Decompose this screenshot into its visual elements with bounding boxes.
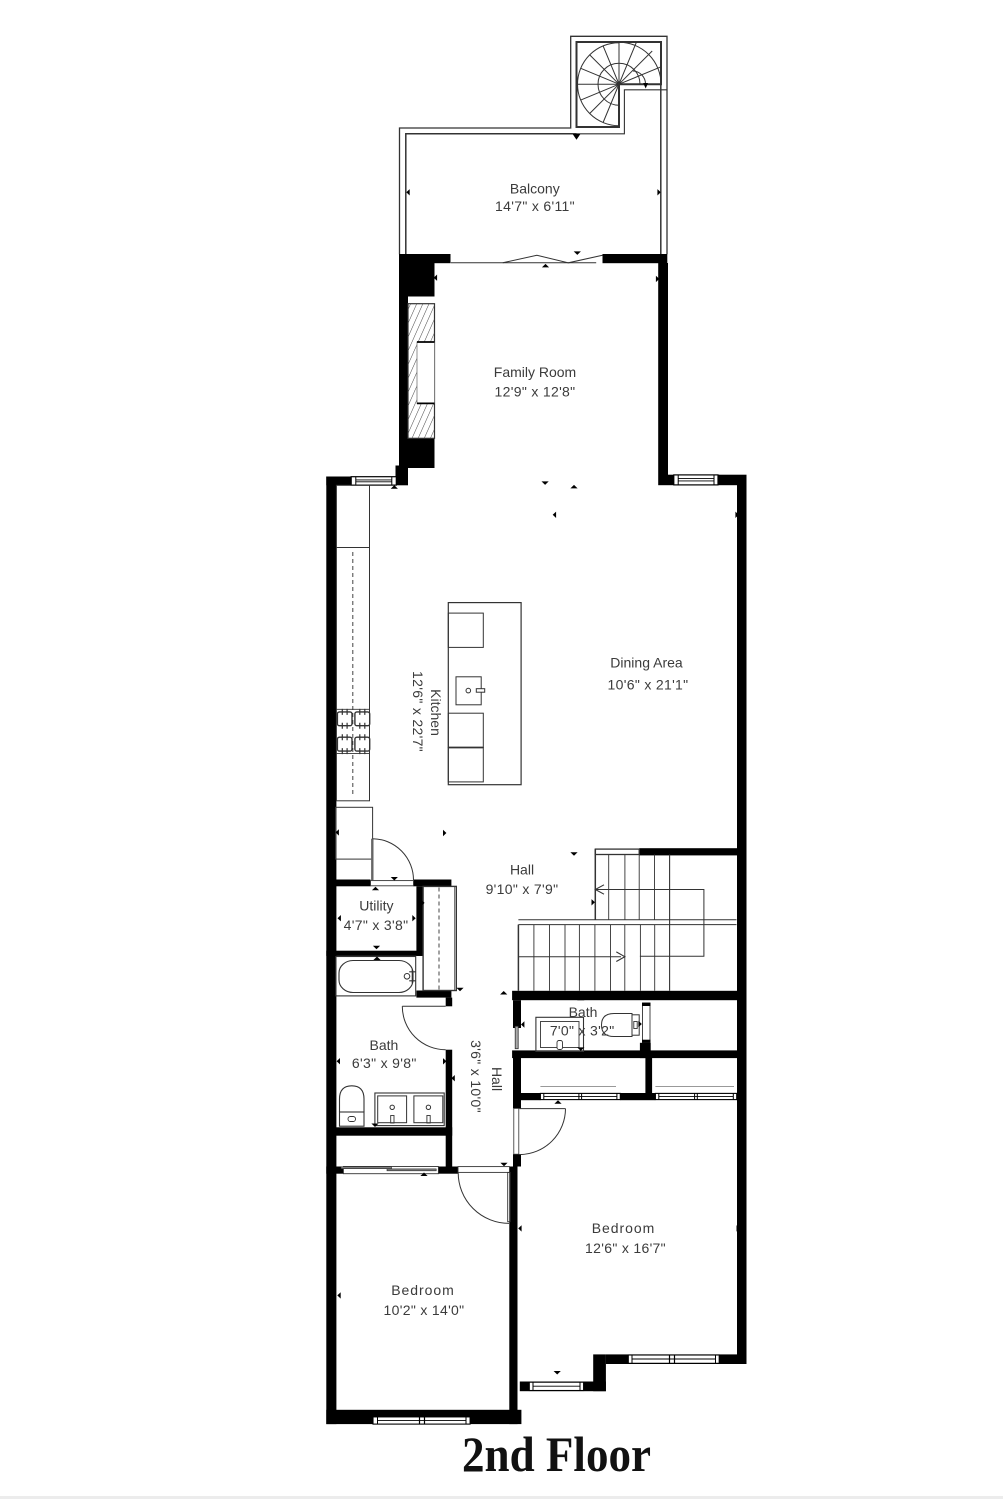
svg-text:12'9" x 12'8": 12'9" x 12'8" xyxy=(495,383,576,399)
svg-text:Bath: Bath xyxy=(369,1037,398,1053)
svg-text:Hall: Hall xyxy=(489,1067,505,1091)
svg-text:Hall: Hall xyxy=(510,862,534,878)
svg-text:10'6" x 21'1": 10'6" x 21'1" xyxy=(608,677,689,693)
svg-text:4'7" x 3'8": 4'7" x 3'8" xyxy=(344,917,409,933)
svg-text:3'6" x 10'0": 3'6" x 10'0" xyxy=(468,1040,484,1113)
svg-text:Kitchen: Kitchen xyxy=(428,689,444,736)
svg-text:Balcony: Balcony xyxy=(510,181,560,197)
svg-text:2nd Floor: 2nd Floor xyxy=(462,1426,651,1482)
svg-text:6'3" x 9'8": 6'3" x 9'8" xyxy=(352,1055,417,1071)
svg-text:Bath: Bath xyxy=(569,1004,598,1020)
svg-text:14'7" x 6'11": 14'7" x 6'11" xyxy=(495,198,575,214)
svg-text:12'6" x 16'7": 12'6" x 16'7" xyxy=(585,1240,666,1256)
svg-text:Utility: Utility xyxy=(359,897,393,913)
svg-text:Bedroom: Bedroom xyxy=(391,1282,454,1298)
svg-text:7'0" x 3'2": 7'0" x 3'2" xyxy=(550,1023,615,1039)
svg-text:12'6" x 22'7": 12'6" x 22'7" xyxy=(410,671,426,752)
svg-text:9'10" x 7'9": 9'10" x 7'9" xyxy=(486,881,559,897)
svg-text:Dining Area: Dining Area xyxy=(610,655,683,671)
svg-text:Bedroom: Bedroom xyxy=(592,1220,655,1236)
svg-text:Family Room: Family Room xyxy=(494,364,576,380)
svg-text:10'2" x 14'0": 10'2" x 14'0" xyxy=(384,1302,465,1318)
